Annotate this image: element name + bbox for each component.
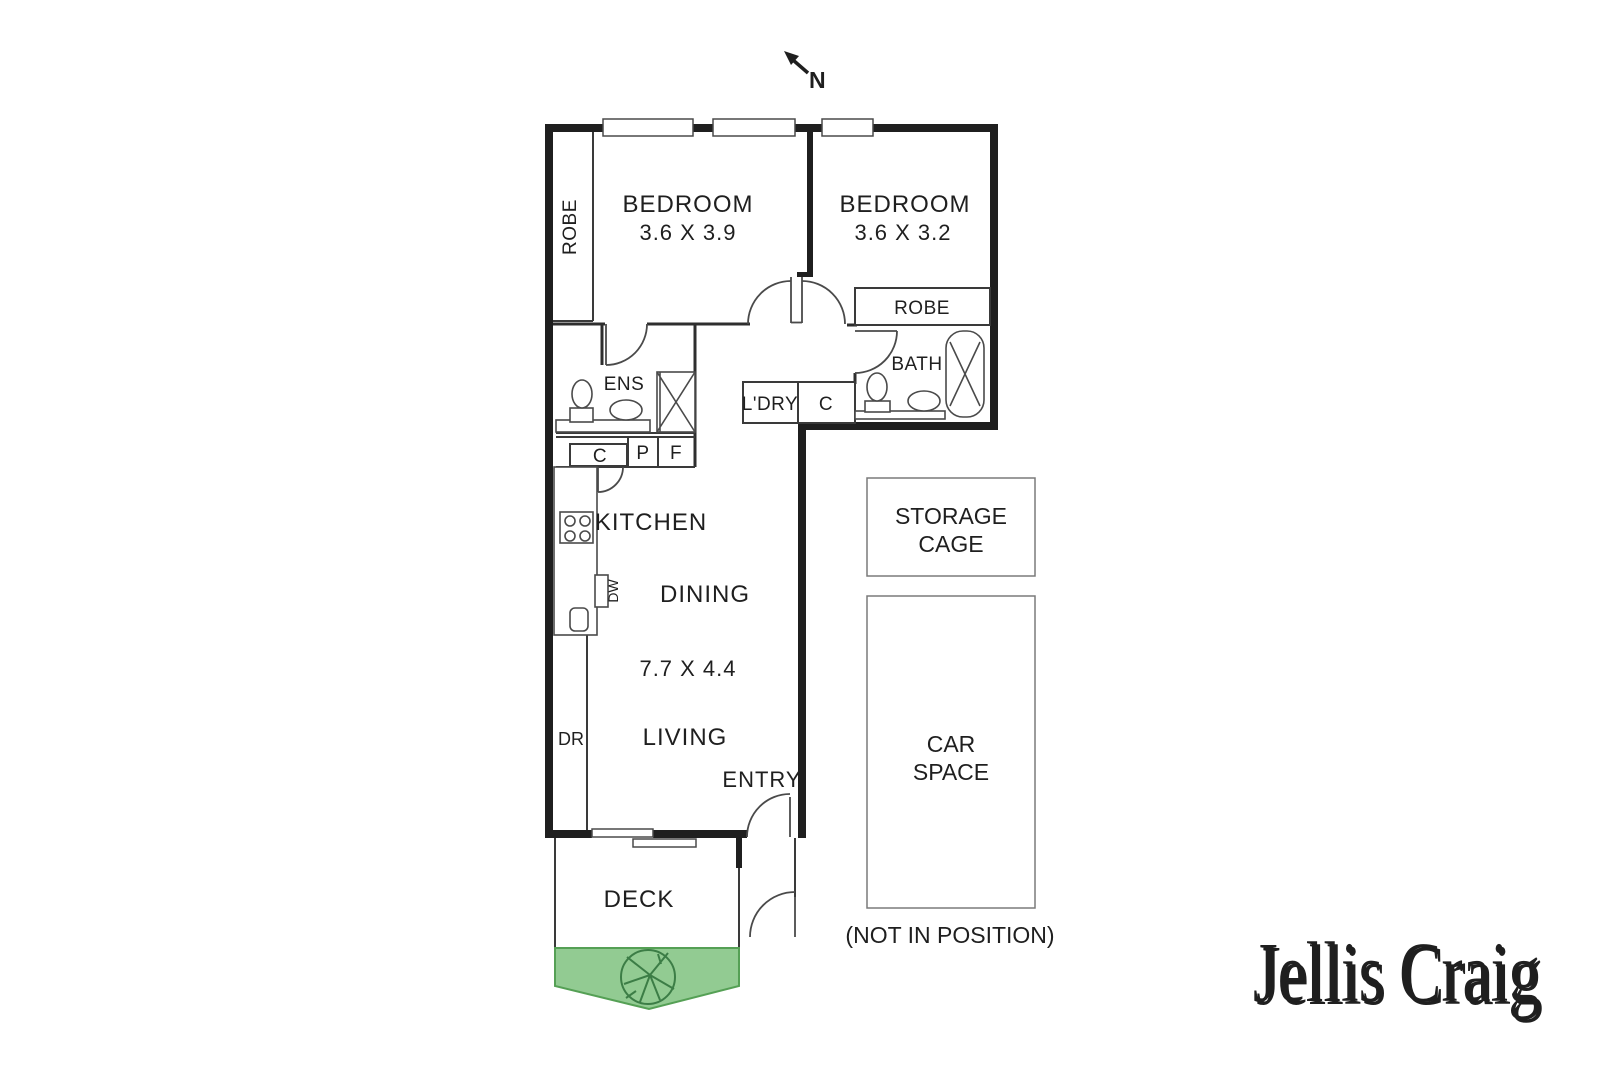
north-label: N [809,67,826,93]
bedroom1-dims: 3.6 X 3.9 [639,220,736,245]
hall-cupboard-label: C [819,394,833,415]
window [822,119,873,136]
robe2-label: ROBE [894,298,950,319]
car-space-line2: SPACE [913,759,989,785]
bath-toilet-cistern [865,401,890,412]
bath-fixtures [855,331,984,419]
dining-label: DINING [660,581,750,608]
dryer-label: DR [558,729,584,749]
living-label: LIVING [643,724,728,751]
window [603,119,693,136]
bath-basin [908,391,940,411]
ens-basin [610,400,642,420]
bathtub [946,331,984,417]
living-dims: 7.7 X 4.4 [639,656,736,681]
bedroom1-door [748,277,791,324]
cooktop [560,512,593,543]
ens-door [606,324,647,365]
floorplan-svg: N [0,0,1600,1067]
kitchen-label: KITCHEN [595,509,707,536]
ens-toilet [572,380,592,408]
robe1-label: ROBE [560,199,581,255]
dishwasher-label: DW [605,579,621,603]
pantry-label: P [636,443,649,464]
fridge-label: F [670,443,682,464]
entry-label: ENTRY [722,767,801,792]
bath-label: BATH [891,354,942,375]
windows [603,119,873,136]
bedroom2-dims: 3.6 X 3.2 [854,220,951,245]
bedroom2-label: BEDROOM [839,191,970,218]
north-arrow [784,51,808,73]
laundry-label: L'DRY [742,394,798,415]
kitchen-sink [570,608,588,631]
bedroom2-door [791,277,845,324]
floorplan-page: N [0,0,1600,1067]
deck-garden [555,948,739,1009]
storage-cage-line2: CAGE [918,531,983,557]
kitchen-cupboard-door [598,467,623,492]
ens-label: ENS [604,374,645,395]
bath-toilet [867,373,887,401]
storage-cage-line1: STORAGE [895,503,1007,529]
entry-door [747,794,790,837]
car-space-line1: CAR [927,731,976,757]
ens-toilet-cistern [570,408,593,422]
kitchen-cupboard-label: C [593,446,607,467]
porch-door [750,892,795,937]
not-in-position-note: (NOT IN POSITION) [845,922,1054,948]
deck-label: DECK [604,886,675,913]
ens-shower [657,372,695,432]
bedroom1-label: BEDROOM [622,191,753,218]
watermark: Jellis Craig Jellis Craig [1253,924,1543,1023]
watermark-text: Jellis Craig [1253,924,1540,1020]
window [713,119,795,136]
